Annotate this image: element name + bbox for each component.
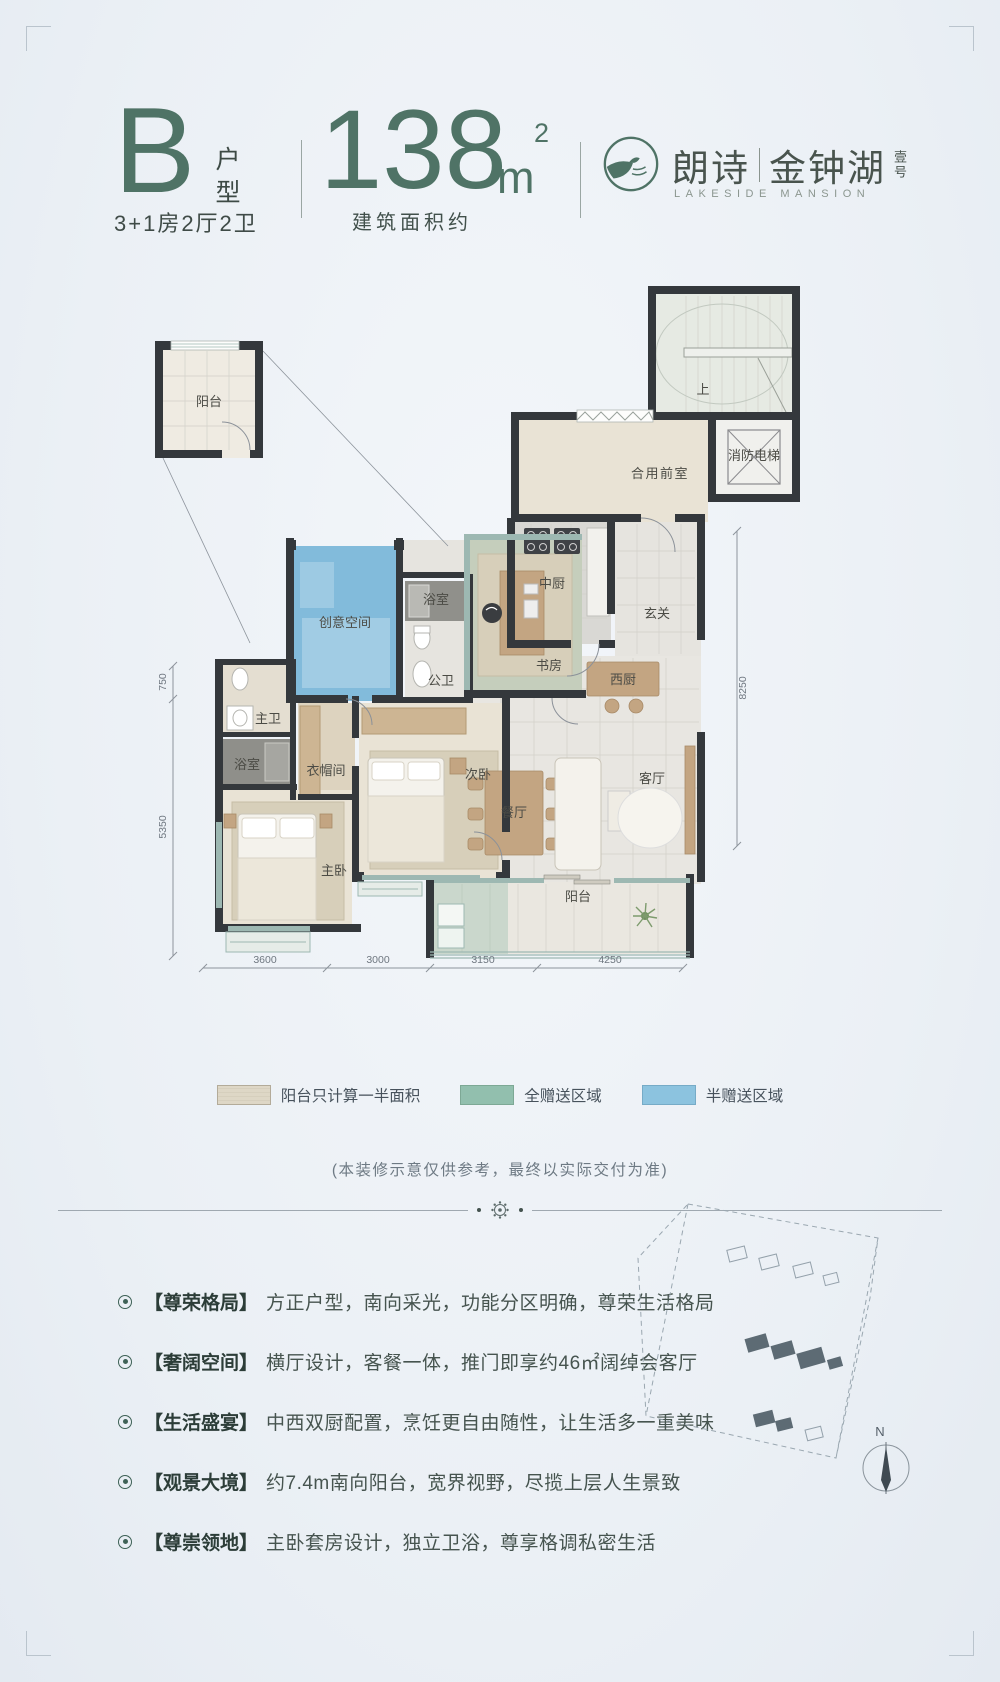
legend-item-half-balcony: 阳台只计算一半面积 (217, 1084, 421, 1106)
legend-item-full-gift: 全赠送区域 (460, 1084, 602, 1106)
feature-bullet-icon (118, 1535, 132, 1549)
dim-bottom-2: 3000 (366, 954, 390, 966)
brand-name: 朗诗 金钟湖 壹号 (672, 138, 906, 192)
dim-bottom-4: 4250 (598, 954, 622, 966)
divider-dot (519, 1208, 523, 1212)
brand-cn-2: 金钟湖 (769, 138, 886, 192)
stair-direction-label: 上 (696, 382, 709, 397)
poster-page: B 户型 3+1房2厅2卫 138 m 2 建筑面积约 朗诗 金钟湖 壹号 LA… (0, 0, 1000, 1682)
room-label-fire-elevator: 消防电梯 (728, 448, 780, 463)
dim-left-1: 750 (157, 673, 169, 691)
feature-tag: 【生活盛宴】 (144, 1408, 258, 1435)
site-map: N (628, 1196, 918, 1512)
header-divider (580, 142, 581, 218)
feature-list: 【尊荣格局】 方正户型，南向采光，功能分区明确，尊荣生活格局 【奢阔空间】 横厅… (118, 1288, 715, 1588)
legend-swatch-balcony (217, 1085, 271, 1105)
floor-plan: 阳台 合用前室 消防电梯 上 中厨 玄关 书房 浴室 公卫 创意空间 主卫 浴室… (100, 266, 820, 1026)
area-caption: 建筑面积约 (352, 206, 472, 235)
feature-tag: 【观景大境】 (144, 1468, 258, 1495)
brand-suffix: 壹号 (893, 150, 906, 180)
feature-tag: 【尊荣格局】 (144, 1288, 258, 1315)
header: B 户型 3+1房2厅2卫 138 m 2 建筑面积约 朗诗 金钟湖 壹号 LA… (0, 0, 1000, 260)
room-label-chinese-kitchen: 中厨 (539, 576, 565, 591)
dim-left-2: 5350 (157, 815, 169, 839)
divider-line (58, 1210, 468, 1211)
room-label-bath: 浴室 (423, 592, 449, 607)
room-label-foyer: 玄关 (644, 606, 670, 621)
legend-swatch-full-gift (460, 1085, 514, 1105)
feature-item: 【观景大境】 约7.4m南向阳台，宽界视野，尽揽上层人生景致 (118, 1468, 715, 1495)
dim-right-1: 8250 (737, 676, 749, 700)
site-buildings-highlight (744, 1333, 843, 1432)
legend-label: 半赠送区域 (706, 1084, 784, 1106)
brand-cn-1: 朗诗 (672, 138, 750, 192)
legend-swatch-half-gift (642, 1085, 696, 1105)
feature-tag: 【奢阔空间】 (144, 1348, 258, 1375)
room-label-west-kitchen: 西厨 (610, 672, 636, 687)
brand-bar (759, 148, 760, 182)
disclaimer-text: (本装修示意仅供参考，最终以实际交付为准) (0, 1158, 1000, 1180)
legend-label: 阳台只计算一半面积 (281, 1084, 421, 1106)
room-label-guest-wc: 公卫 (428, 673, 454, 688)
header-divider (301, 140, 302, 218)
area-unit: m (497, 152, 535, 204)
feature-item: 【奢阔空间】 横厅设计，客餐一体，推门即享约46㎡阔绰会客厅 (118, 1348, 715, 1375)
dim-bottom-3: 3150 (471, 954, 495, 966)
feature-bullet-icon (118, 1295, 132, 1309)
unit-type-label: 户型 (208, 146, 244, 212)
room-label-living: 客厅 (639, 771, 665, 786)
room-label-inset-balcony: 阳台 (196, 394, 222, 409)
north-compass: N (863, 1424, 909, 1494)
legend-item-half-gift: 半赠送区域 (642, 1084, 784, 1106)
area-superscript: 2 (534, 118, 549, 149)
room-label-south-balcony: 阳台 (565, 889, 591, 904)
room-label-creative-space: 创意空间 (319, 615, 371, 630)
room-label-dining: 餐厅 (501, 805, 527, 820)
room-label-shared-lobby: 合用前室 (631, 466, 689, 481)
room-label-master-wc: 主卫 (255, 711, 281, 726)
divider-dot (477, 1208, 481, 1212)
area-number: 138 (320, 100, 507, 201)
unit-layout-summary: 3+1房2厅2卫 (114, 206, 258, 238)
feature-bullet-icon (118, 1475, 132, 1489)
brand-english: LAKESIDE MANSION (674, 188, 870, 200)
feature-tag: 【尊崇领地】 (144, 1528, 258, 1555)
legend-label: 全赠送区域 (524, 1084, 602, 1106)
room-label-study: 书房 (536, 658, 562, 673)
dim-bottom-1: 3600 (253, 954, 277, 966)
room-label-second-bedroom: 次卧 (465, 767, 491, 782)
legend: 阳台只计算一半面积 全赠送区域 半赠送区域 (0, 1084, 1000, 1106)
feature-item: 【尊崇领地】 主卧套房设计，独立卫浴，尊享格调私密生活 (118, 1528, 715, 1555)
room-label-master-bedroom: 主卧 (321, 863, 347, 878)
frame-corner (26, 1631, 51, 1656)
divider-ornament-icon (490, 1200, 510, 1220)
room-label-walkin-closet: 衣帽间 (306, 763, 345, 778)
study-room (468, 540, 582, 692)
unit-type-letter: B (114, 96, 195, 206)
feature-text: 约7.4m南向阳台，宽界视野，尽揽上层人生景致 (266, 1468, 681, 1495)
feature-bullet-icon (118, 1355, 132, 1369)
room-label-master-bath: 浴室 (234, 757, 260, 772)
brand-logo-icon (600, 133, 662, 195)
frame-corner (949, 1631, 974, 1656)
compass-north-label: N (875, 1424, 884, 1439)
feature-item: 【尊荣格局】 方正户型，南向采光，功能分区明确，尊荣生活格局 (118, 1288, 715, 1315)
feature-item: 【生活盛宴】 中西双厨配置，烹饪更自由随性，让生活多一重美味 (118, 1408, 715, 1435)
feature-bullet-icon (118, 1415, 132, 1429)
feature-text: 主卧套房设计，独立卫浴，尊享格调私密生活 (266, 1528, 656, 1555)
